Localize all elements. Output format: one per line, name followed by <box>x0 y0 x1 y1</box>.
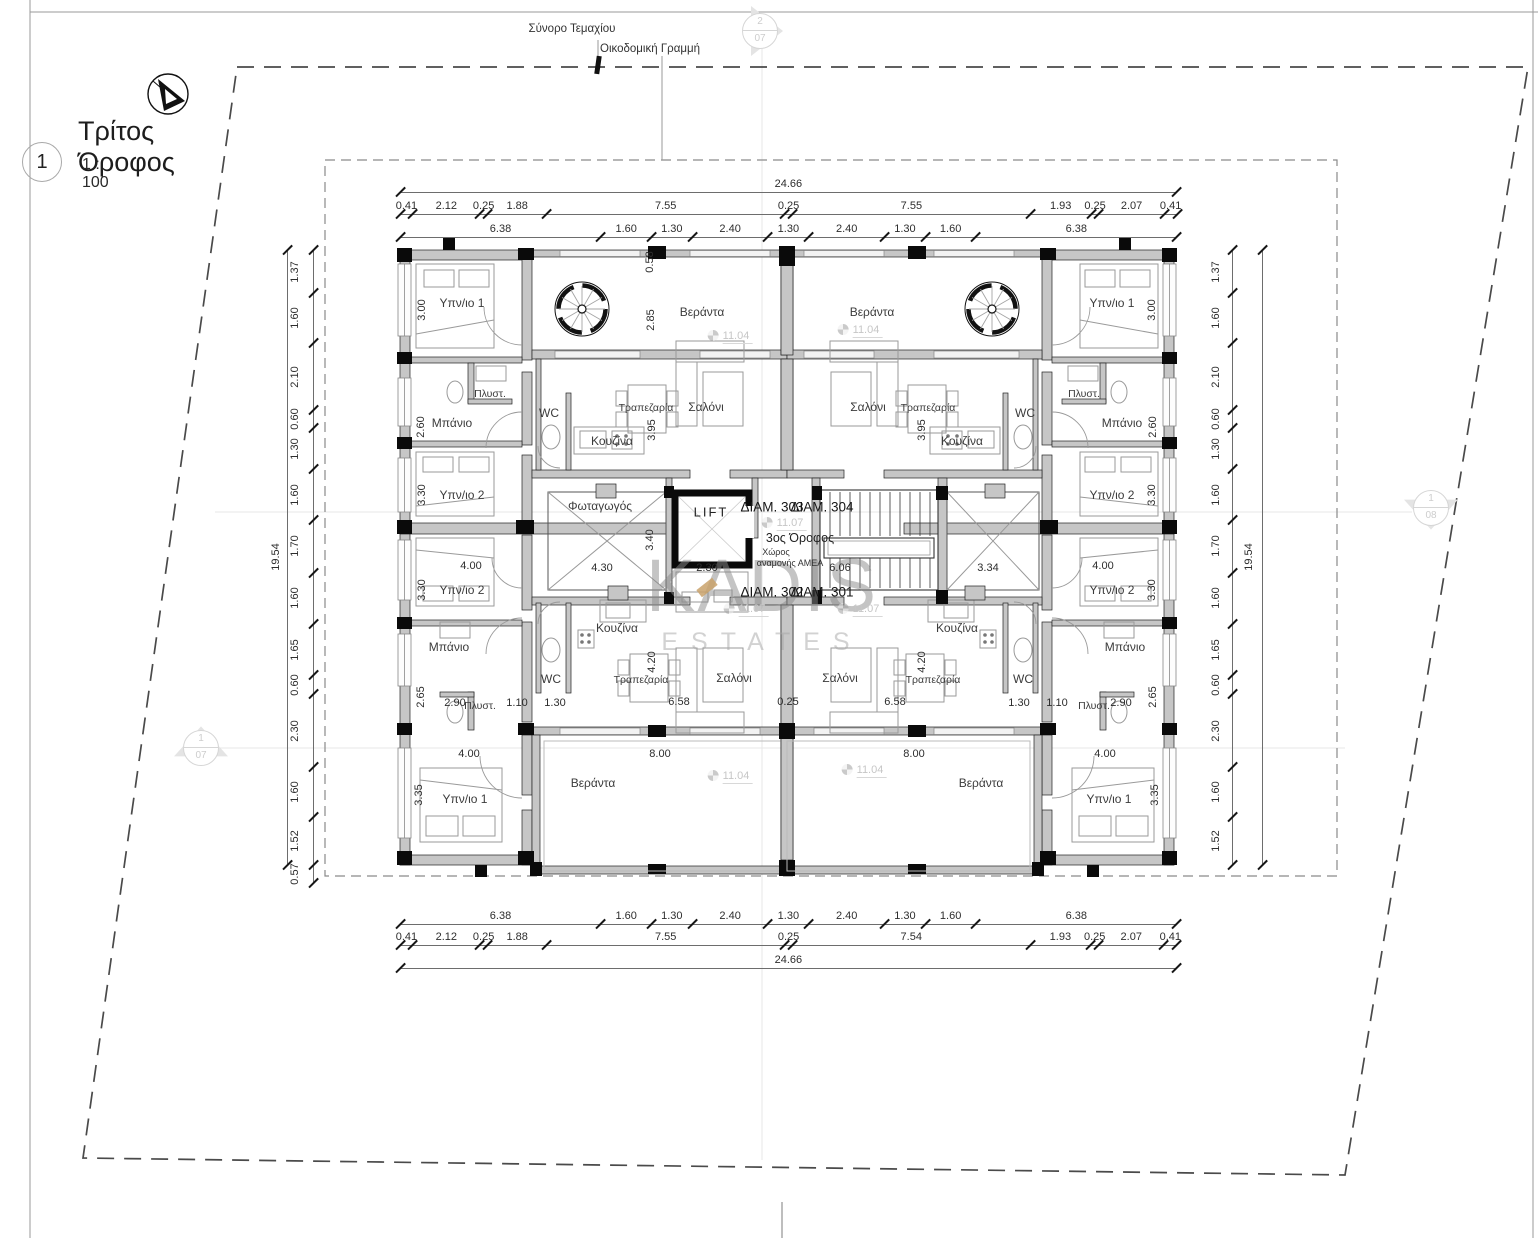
dimension-value: 1.37 <box>289 261 301 282</box>
dimension-value: 0.60 <box>1210 674 1222 695</box>
room-label: Υπν/ιο 2 <box>440 488 485 502</box>
dimension-value: 2.12 <box>436 931 457 943</box>
room-label: Κουζίνα <box>941 434 983 448</box>
room-label: Σαλόνι <box>822 671 858 685</box>
watermark-line2: ESTATES <box>646 628 878 657</box>
room-label: Πλυστ. <box>1068 388 1100 400</box>
dim-label: 2.90 <box>1110 697 1131 709</box>
dim-label: 2.90 <box>444 697 465 709</box>
level-icon <box>724 603 735 614</box>
dim-label: 0.58 <box>644 251 656 272</box>
dim-label: 2.60 <box>1147 416 1159 437</box>
section-marker: 107 <box>183 730 219 766</box>
dimension-value: 1.65 <box>1210 639 1222 660</box>
dim-label: 1.30 <box>1008 697 1029 709</box>
dimension-line <box>1262 250 1263 865</box>
dimension-value: 24.66 <box>775 954 803 966</box>
dim-label: 6.06 <box>829 562 850 574</box>
level-marker: 11.07 <box>838 603 883 615</box>
room-label: Κουζίνα <box>591 434 633 448</box>
dimension-value: 0.25 <box>778 931 799 943</box>
room-label: Υπν/ιο 1 <box>1087 792 1132 806</box>
dim-label: 3.00 <box>1146 299 1158 320</box>
dimension-line <box>400 924 1177 925</box>
room-label: Κουζίνα <box>936 621 978 635</box>
room-label: Τραπεζαρία <box>614 674 669 686</box>
room-label: Υπν/ιο 1 <box>443 792 488 806</box>
dimension-value: 1.60 <box>615 910 636 922</box>
room-label: Βεράντα <box>850 305 895 319</box>
apartment-number-label: ΔΙΑΜ. 304 <box>790 500 853 515</box>
section-marker-badge: 108 <box>1413 490 1449 526</box>
dimension-value: 7.55 <box>655 931 676 943</box>
dimension-line <box>400 968 1177 969</box>
room-label: Σαλόνι <box>688 400 724 414</box>
dimension-value: 2.07 <box>1121 200 1142 212</box>
dimension-line <box>287 250 288 865</box>
dimension-value: 1.37 <box>1210 261 1222 282</box>
dimension-value: 1.88 <box>506 200 527 212</box>
room-label: Μπάνιο <box>1102 416 1142 430</box>
dimension-line <box>400 192 1177 193</box>
level-marker: 11.07 <box>724 603 769 615</box>
dim-label: 3.30 <box>416 579 428 600</box>
lift-label: LIFT <box>694 505 729 520</box>
dimension-value: 1.30 <box>661 223 682 235</box>
level-icon <box>708 770 719 781</box>
dim-label: 3.30 <box>1146 484 1158 505</box>
dim-label: 3.30 <box>416 484 428 505</box>
dimension-value: 1.60 <box>1210 588 1222 609</box>
room-label: Μπάνιο <box>432 416 472 430</box>
level-icon <box>838 324 849 335</box>
dimension-value: 2.40 <box>719 910 740 922</box>
dim-label: 4.00 <box>460 560 481 572</box>
dim-label: 1.30 <box>544 697 565 709</box>
dimension-value: 6.38 <box>490 223 511 235</box>
dimension-value: 2.10 <box>1210 366 1222 387</box>
level-marker: 11.04 <box>842 764 887 776</box>
dimension-value: 2.40 <box>836 223 857 235</box>
level-marker: 11.07 <box>762 517 807 529</box>
dimension-value: 1.30 <box>778 223 799 235</box>
section-marker: 108 <box>1413 490 1449 526</box>
dimension-value: 0.41 <box>1160 931 1181 943</box>
dimension-line <box>313 250 314 883</box>
room-label: Πλυστ. <box>1078 700 1110 712</box>
dim-label: 4.00 <box>458 748 479 760</box>
veranda-circle <box>555 282 609 336</box>
dimension-value: 0.60 <box>289 674 301 695</box>
room-label: Τραπεζαρία <box>901 402 956 414</box>
dimension-value: 19.54 <box>1243 544 1255 572</box>
room-label: WC <box>541 672 561 686</box>
site-boundary-label: Σύνορο Τεμαχίου <box>529 23 616 35</box>
dimension-value: 0.25 <box>1084 200 1105 212</box>
level-marker: 11.04 <box>838 324 883 336</box>
room-label: Υπν/ιο 2 <box>440 583 485 597</box>
dimension-value: 1.60 <box>615 223 636 235</box>
room-label: Βεράντα <box>959 776 1004 790</box>
dim-label: 2.65 <box>415 686 427 707</box>
dim-label: 0.25 <box>777 696 798 708</box>
floor-label: 3ος Όροφος <box>766 531 834 545</box>
dimension-value: 2.40 <box>836 910 857 922</box>
building-line <box>325 160 1337 876</box>
dimension-value: 0.41 <box>396 200 417 212</box>
level-icon <box>708 330 719 341</box>
dimension-value: 1.88 <box>506 931 527 943</box>
section-marker-badge: 207 <box>742 13 778 49</box>
dimension-value: 2.07 <box>1121 931 1142 943</box>
dimension-value: 7.54 <box>901 931 922 943</box>
dimension-value: 2.12 <box>436 200 457 212</box>
dimension-value: 7.55 <box>655 200 676 212</box>
dimension-value: 0.25 <box>473 931 494 943</box>
dim-label: 6.58 <box>668 696 689 708</box>
room-label: Μπάνιο <box>429 640 469 654</box>
room-label: WC <box>1015 406 1035 420</box>
room-label: Φωταγωγός <box>568 499 632 513</box>
dimension-value: 1.60 <box>1210 308 1222 329</box>
room-label: Τραπεζαρία <box>906 674 961 686</box>
dimension-value: 0.60 <box>289 408 301 429</box>
dimension-value: 1.70 <box>289 536 301 557</box>
dim-label: 8.00 <box>649 748 670 760</box>
room-label: Πλυστ. <box>474 388 506 400</box>
level-icon <box>838 603 849 614</box>
dimension-value: 6.38 <box>1066 910 1087 922</box>
level-icon <box>842 764 853 775</box>
dim-label: 3.35 <box>1149 784 1161 805</box>
dim-label: 2.85 <box>645 309 657 330</box>
dimension-value: 1.30 <box>778 910 799 922</box>
room-label: Μπάνιο <box>1105 640 1145 654</box>
dim-label: 3.95 <box>916 419 928 440</box>
dimension-value: 2.40 <box>719 223 740 235</box>
dimension-value: 0.25 <box>473 200 494 212</box>
dim-label: 4.00 <box>1092 560 1113 572</box>
dim-label: 4.30 <box>591 562 612 574</box>
dimension-value: 1.93 <box>1050 931 1071 943</box>
note-label: Χώρος <box>762 547 790 557</box>
note-label: αναμονής ΑΜΕΑ <box>757 558 823 568</box>
dimension-value: 1.60 <box>289 781 301 802</box>
dimension-value: 1.65 <box>289 639 301 660</box>
dimension-value: 1.60 <box>1210 781 1222 802</box>
dimension-value: 0.60 <box>1210 408 1222 429</box>
dimension-value: 1.52 <box>1210 830 1222 851</box>
room-label: Πλυστ. <box>464 700 496 712</box>
dimension-value: 0.41 <box>1160 200 1181 212</box>
apartment-number-label: ΔΙΑΜ. 301 <box>790 585 853 600</box>
view-number-badge: 1 <box>22 142 62 182</box>
room-label: Υπν/ιο 1 <box>440 296 485 310</box>
room-label: Υπν/ιο 2 <box>1090 583 1135 597</box>
dimension-value: 1.30 <box>894 223 915 235</box>
dimension-value: 0.57 <box>289 863 301 884</box>
dim-label: 3.30 <box>1146 579 1158 600</box>
room-label: WC <box>1013 672 1033 686</box>
room-label: WC <box>539 406 559 420</box>
dim-label: 4.00 <box>1094 748 1115 760</box>
dim-label: 2.60 <box>415 416 427 437</box>
dimension-value: 19.54 <box>270 544 282 572</box>
room-label: Τραπεζαρία <box>619 402 674 414</box>
room-label: Σαλόνι <box>850 400 886 414</box>
dim-label: 3.95 <box>646 419 658 440</box>
dimension-value: 1.60 <box>1210 484 1222 505</box>
dimension-line <box>400 237 1177 238</box>
dimension-value: 1.93 <box>1050 200 1071 212</box>
dimension-value: 7.55 <box>901 200 922 212</box>
dim-label: 8.00 <box>903 748 924 760</box>
dimension-value: 0.41 <box>396 931 417 943</box>
dim-label: 2.30 <box>696 562 717 574</box>
dimension-value: 1.30 <box>894 910 915 922</box>
level-marker: 11.04 <box>708 770 753 782</box>
dim-label: 2.65 <box>1147 686 1159 707</box>
dimension-value: 6.38 <box>1066 223 1087 235</box>
dimension-value: 1.60 <box>289 308 301 329</box>
dim-label: 1.10 <box>506 697 527 709</box>
dim-label: 3.34 <box>977 562 998 574</box>
dimension-value: 0.25 <box>1084 931 1105 943</box>
boundary-leaders <box>594 40 662 160</box>
dimension-value: 1.60 <box>289 484 301 505</box>
dimension-value: 1.60 <box>940 223 961 235</box>
level-marker: 11.04 <box>708 330 753 342</box>
dim-label: 3.40 <box>644 529 656 550</box>
room-label: Βεράντα <box>680 305 725 319</box>
building-line-label: Οικοδομική Γραμμή <box>600 43 700 55</box>
dim-label: 1.10 <box>1046 697 1067 709</box>
dimension-value: 1.30 <box>661 910 682 922</box>
dimension-value: 1.60 <box>289 588 301 609</box>
floor-plan-sheet: 1 Τρίτος Όροφος 1 : 100 Σύνορο Τεμαχίου … <box>0 0 1538 1238</box>
section-marker-badge: 107 <box>183 730 219 766</box>
room-label: Βεράντα <box>571 776 616 790</box>
dimension-value: 1.30 <box>289 438 301 459</box>
dim-label: 4.20 <box>916 651 928 672</box>
room-label: Σαλόνι <box>716 671 752 685</box>
drawing-scale: 1 : 100 <box>82 156 109 192</box>
room-label: Υπν/ιο 2 <box>1090 488 1135 502</box>
dimension-value: 6.38 <box>490 910 511 922</box>
dim-label: 6.58 <box>884 696 905 708</box>
dimension-value: 2.30 <box>289 720 301 741</box>
dim-label: 3.35 <box>413 784 425 805</box>
dimension-value: 1.30 <box>1210 438 1222 459</box>
dim-label: 3.00 <box>416 299 428 320</box>
room-label: Υπν/ιο 1 <box>1090 296 1135 310</box>
dimension-value: 24.66 <box>775 178 803 190</box>
level-icon <box>762 517 773 528</box>
dim-label: 4.20 <box>646 651 658 672</box>
dimension-value: 2.10 <box>289 366 301 387</box>
dimension-value: 1.60 <box>940 910 961 922</box>
dimension-value: 1.70 <box>1210 536 1222 557</box>
dimension-value: 2.30 <box>1210 720 1222 741</box>
section-marker: 207 <box>742 13 778 49</box>
dimension-value: 1.52 <box>289 830 301 851</box>
room-label: Κουζίνα <box>596 621 638 635</box>
dimension-value: 0.25 <box>778 200 799 212</box>
